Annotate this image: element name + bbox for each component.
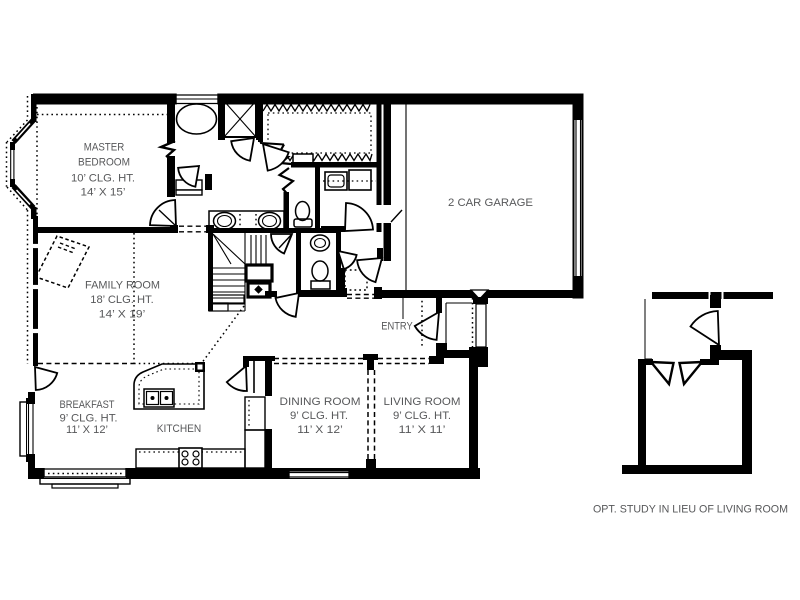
svg-text:FAMILY ROOM: FAMILY ROOM <box>85 280 160 292</box>
svg-text:10’ CLG. HT.: 10’ CLG. HT. <box>71 173 135 185</box>
svg-text:9’ CLG. HT.: 9’ CLG. HT. <box>60 413 118 425</box>
svg-text:DINING ROOM: DINING ROOM <box>280 396 361 408</box>
svg-text:MASTER: MASTER <box>84 142 125 154</box>
svg-text:9’ CLG. HT.: 9’ CLG. HT. <box>393 410 451 422</box>
svg-text:14’ X 19’: 14’ X 19’ <box>99 309 146 321</box>
svg-text:KITCHEN: KITCHEN <box>157 423 202 435</box>
svg-text:14’ X 15’: 14’ X 15’ <box>81 187 126 199</box>
svg-text:BEDROOM: BEDROOM <box>78 157 130 169</box>
svg-text:11’ X 12’: 11’ X 12’ <box>66 424 108 436</box>
svg-text:BREAKFAST: BREAKFAST <box>60 399 115 411</box>
svg-text:ENTRY: ENTRY <box>381 321 413 333</box>
svg-text:11’ X 12’: 11’ X 12’ <box>297 424 343 436</box>
svg-text:18’ CLG. HT.: 18’ CLG. HT. <box>90 294 154 306</box>
svg-text:OPT. STUDY IN LIEU OF LIVING R: OPT. STUDY IN LIEU OF LIVING ROOM <box>593 504 788 516</box>
svg-text:11’ X 11’: 11’ X 11’ <box>399 424 446 436</box>
svg-text:9’ CLG. HT.: 9’ CLG. HT. <box>290 410 348 422</box>
svg-text:LIVING ROOM: LIVING ROOM <box>384 396 461 408</box>
svg-text:2 CAR GARAGE: 2 CAR GARAGE <box>448 197 533 209</box>
